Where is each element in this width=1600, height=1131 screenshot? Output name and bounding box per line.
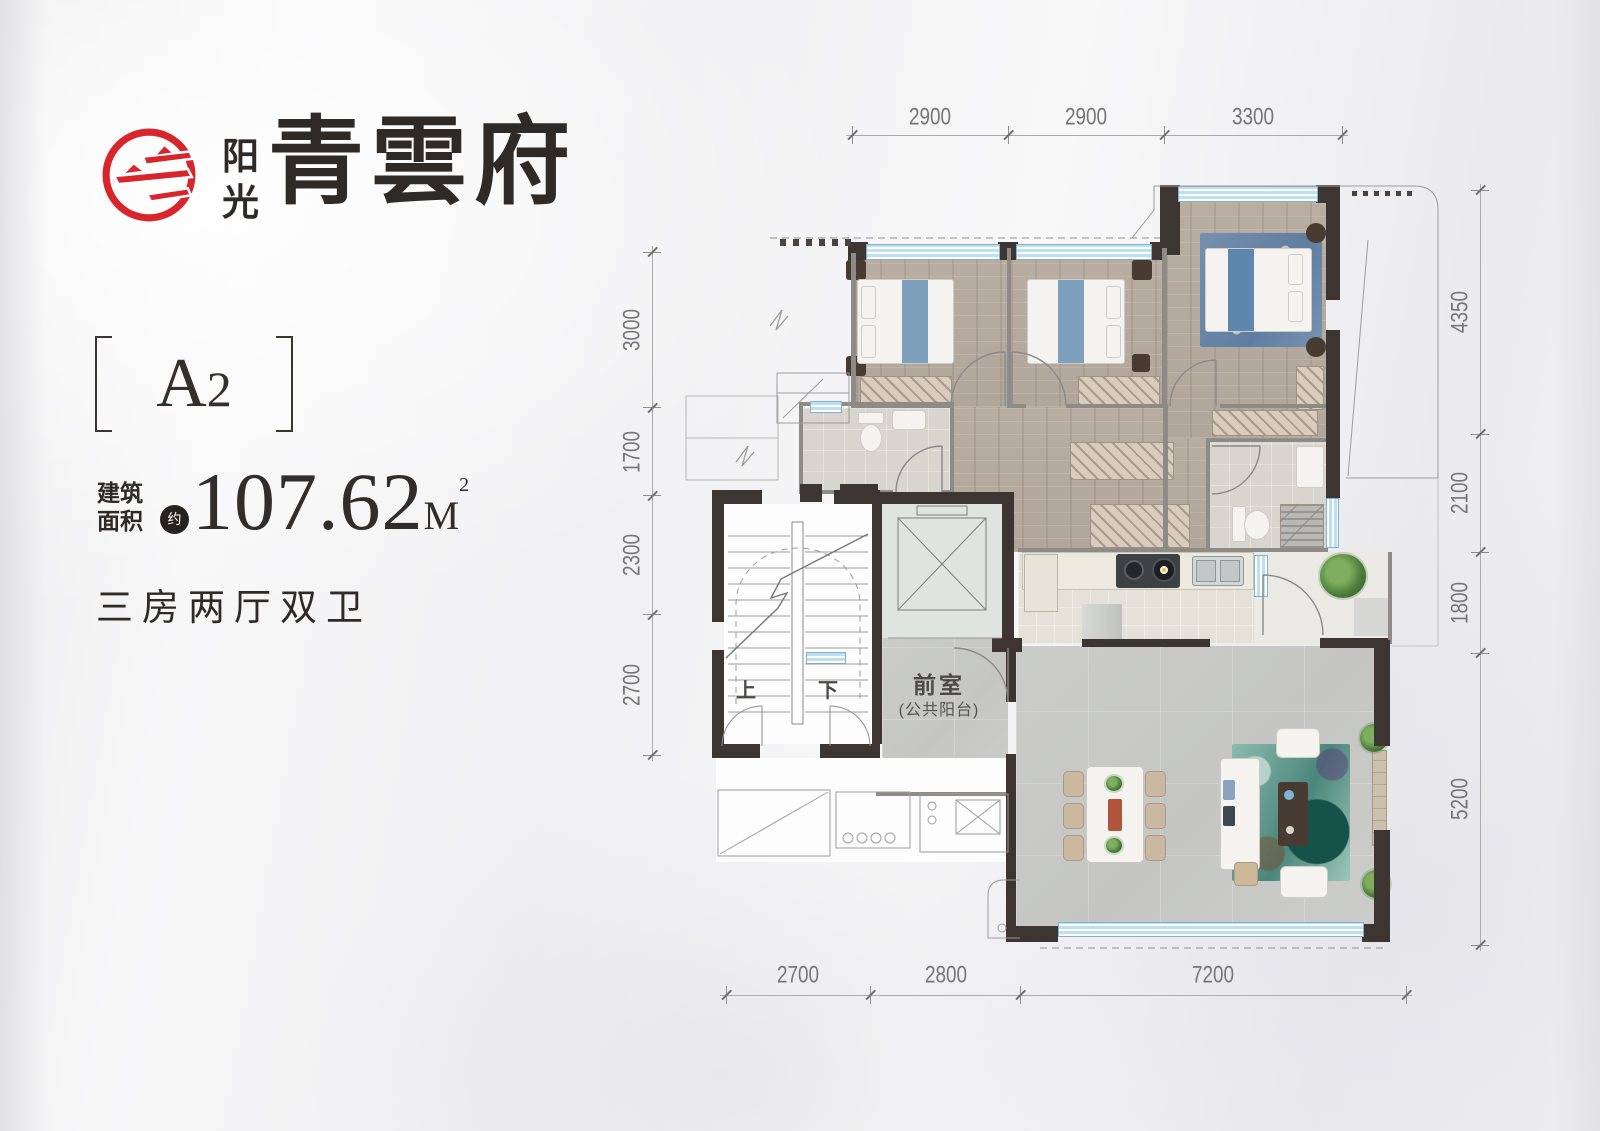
front-room-label: 前室 [896, 666, 982, 700]
dim-label-right: 1800 [1447, 566, 1473, 640]
dim-label-left: 2700 [619, 648, 645, 722]
area-label: 建筑 面积 [97, 479, 143, 535]
bracket-right [276, 336, 293, 432]
brand-logo-icon [100, 126, 198, 224]
area-value: 107.62M2 [192, 455, 469, 549]
area-label-line1: 建筑 [97, 479, 143, 507]
area-unit: M [424, 493, 460, 538]
dim-label-top: 3300 [1216, 104, 1290, 130]
floor-plan: 前室 (公共阳台) 上 下 29002900330027002800720030… [620, 90, 1520, 1025]
brand-name-small: 阳 光 [222, 134, 259, 226]
front-room-sublabel: (公共阳台) [878, 696, 1000, 720]
plan-linework [620, 90, 1520, 1025]
right-edge-shade [1554, 0, 1600, 1131]
dim-label-left: 1700 [619, 415, 645, 489]
dim-line-left [652, 246, 653, 761]
dim-line-bottom [720, 995, 1412, 996]
left-edge-shade [0, 0, 46, 1131]
brand-name-small-bottom: 光 [222, 180, 259, 226]
dim-label-right: 4350 [1447, 275, 1473, 349]
dim-label-bottom: 2700 [761, 962, 835, 988]
dim-label-right: 5200 [1447, 762, 1473, 836]
approx-badge: 约 [160, 505, 189, 534]
bracket-left [95, 336, 112, 432]
dim-label-bottom: 7200 [1176, 962, 1250, 988]
brand-name-large: 青雲府 [268, 110, 577, 216]
area-superscript: 2 [459, 474, 469, 496]
brand-name-small-top: 阳 [222, 134, 259, 180]
area-number: 107.62 [192, 456, 424, 547]
dim-label-left: 2300 [619, 518, 645, 592]
dim-label-left: 3000 [619, 293, 645, 367]
dim-line-right [1480, 184, 1481, 951]
unit-code-letter: A [156, 345, 207, 422]
area-label-line2: 面积 [97, 507, 143, 535]
dim-label-right: 2100 [1447, 456, 1473, 530]
unit-code-number: 2 [207, 361, 232, 417]
stairs-down-label: 下 [812, 674, 844, 703]
stairs-up-label: 上 [730, 674, 762, 703]
unit-code: A2 [95, 336, 293, 432]
dim-label-top: 2900 [1049, 104, 1123, 130]
layout-description: 三房两厅双卫 [96, 577, 372, 631]
dim-line-top [846, 135, 1348, 136]
dim-label-bottom: 2800 [909, 962, 983, 988]
dim-label-top: 2900 [893, 104, 967, 130]
